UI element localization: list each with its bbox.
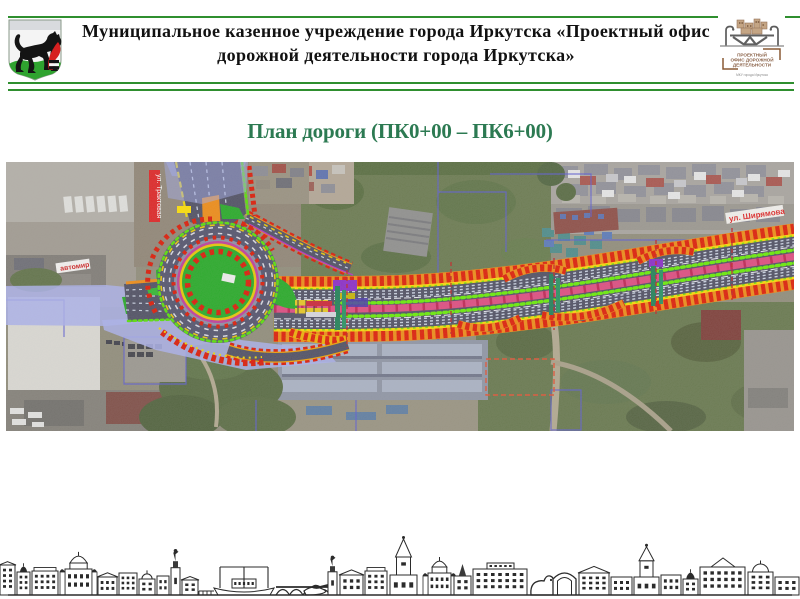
svg-text:ПРОЕКТНЫЙ: ПРОЕКТНЫЙ [737,51,767,58]
svg-text:МКУ города Иркутска: МКУ города Иркутска [736,73,768,77]
svg-text:ДЕЯТЕЛЬНОСТИ: ДЕЯТЕЛЬНОСТИ [733,63,771,68]
svg-text:ОФИС ДОРОЖНОЙ: ОФИС ДОРОЖНОЙ [730,56,773,63]
